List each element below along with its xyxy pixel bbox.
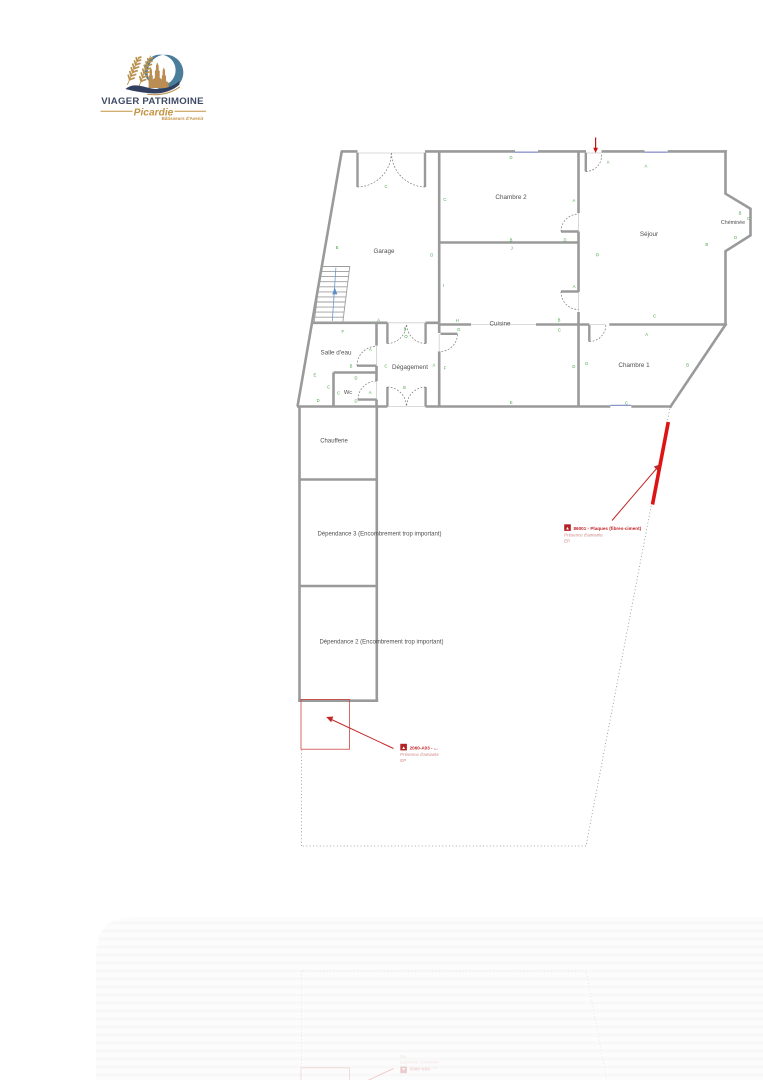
svg-text:C: C [384,363,387,368]
svg-text:E: E [510,400,513,405]
svg-text:Chéminée: Chéminée [721,220,745,226]
svg-text:A: A [645,164,648,169]
svg-text:Séjour: Séjour [640,231,658,238]
svg-text:Dépendance 2 (Encombrement tro: Dépendance 2 (Encombrement trop importan… [319,640,443,646]
svg-text:Cuisine: Cuisine [490,321,511,328]
svg-text:A: A [573,198,576,203]
svg-text:Dépendance 3 (Encombrement tro: Dépendance 3 (Encombrement trop importan… [317,532,441,538]
svg-text:C: C [747,216,750,221]
svg-text:B: B [510,238,513,243]
svg-text:D: D [585,361,588,366]
svg-text:C: C [443,197,446,202]
svg-text:EP: EP [564,538,570,543]
svg-text:B: B [705,242,708,247]
svg-text:F: F [444,366,447,371]
svg-text:Dégagement: Dégagement [392,364,428,371]
svg-text:D: D [509,155,512,160]
svg-text:B: B [558,318,561,323]
svg-text:VIAGER PATRIMOINE: VIAGER PATRIMOINE [101,96,204,107]
svg-text:B: B [350,363,353,368]
svg-text:EP: EP [400,758,406,763]
svg-text:D: D [572,364,575,369]
svg-text:C: C [625,401,628,406]
svg-text:H: H [456,318,459,323]
svg-text:Salle d'eau: Salle d'eau [321,350,352,357]
svg-text:C: C [384,184,387,189]
svg-text:D: D [430,253,433,258]
svg-text:Chaufferie: Chaufferie [320,439,348,445]
svg-text:Présence d'amiante: Présence d'amiante [564,532,603,537]
svg-text:Chambre 1: Chambre 1 [618,362,650,369]
svg-text:A: A [433,362,436,367]
svg-text:Chambre 2: Chambre 2 [495,194,527,201]
svg-text:Présence d'amiante: Présence d'amiante [400,752,439,757]
svg-text:D: D [354,399,357,404]
svg-text:G: G [457,327,460,332]
svg-text:F: F [342,329,345,334]
svg-text:C: C [327,385,330,390]
svg-text:A: A [377,318,380,323]
svg-text:D: D [734,235,737,240]
svg-text:A: A [607,160,610,165]
svg-text:Wc: Wc [344,390,352,396]
svg-text:B: B [739,211,742,216]
svg-text:B: B [336,245,339,250]
svg-text:B: B [686,363,689,368]
svg-text:2060-A03 - ...: 2060-A03 - ... [410,746,438,751]
svg-text:A: A [369,390,372,395]
svg-text:B: B [404,327,407,332]
svg-text:I: I [443,283,444,288]
svg-text:A: A [369,347,372,352]
svg-text:E: E [314,373,317,378]
svg-text:▲: ▲ [565,526,570,531]
svg-text:D: D [563,238,566,243]
svg-text:Bâtisseurs d'Avenir: Bâtisseurs d'Avenir [162,116,204,121]
svg-text:J: J [511,246,513,251]
svg-text:▲: ▲ [401,745,406,750]
svg-text:A: A [645,332,648,337]
svg-text:C: C [653,314,656,319]
svg-text:C: C [337,391,340,396]
svg-text:B: B [403,385,406,390]
svg-text:D: D [317,398,320,403]
svg-text:86001 - Plaques (fibres-ciment: 86001 - Plaques (fibres-ciment) [574,526,642,531]
svg-text:D: D [354,376,357,381]
svg-text:Garage: Garage [373,248,395,255]
svg-text:A: A [573,284,576,289]
svg-text:C: C [558,328,561,333]
